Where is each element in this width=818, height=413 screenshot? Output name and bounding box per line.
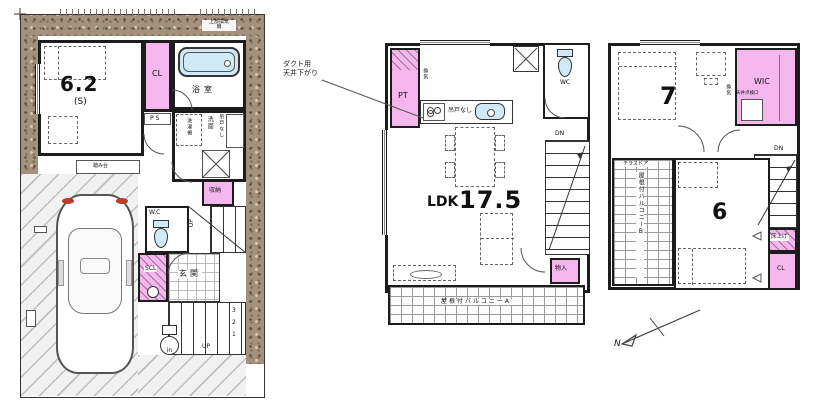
duct-annotation-line1: ダクト用: [283, 60, 318, 69]
north-label: N: [614, 340, 621, 349]
duct-annotation: ダクト用 天井下がり: [283, 60, 318, 78]
plan-1f: 6.2 (S) CL P S 浴室 上部換気 扇 洗濯機 洗面 吊戸なし 収納: [20, 14, 265, 398]
duct-annotation-line2: 天井下がり: [283, 69, 318, 78]
annotation-leader-line: [320, 78, 430, 128]
plan-3f: 7 換気 WIC 天井点検口 DN 床上げ CL 6 テラスドア 屋根付バルコニ…: [608, 40, 803, 292]
plan-3f-linework: [608, 40, 803, 292]
north-arrow-icon: [612, 300, 707, 362]
floor-plan-sheet: 6.2 (S) CL P S 浴室 上部換気 扇 洗濯機 洗面 吊戸なし 収納: [0, 0, 818, 413]
plan-1f-linework: [20, 14, 265, 398]
